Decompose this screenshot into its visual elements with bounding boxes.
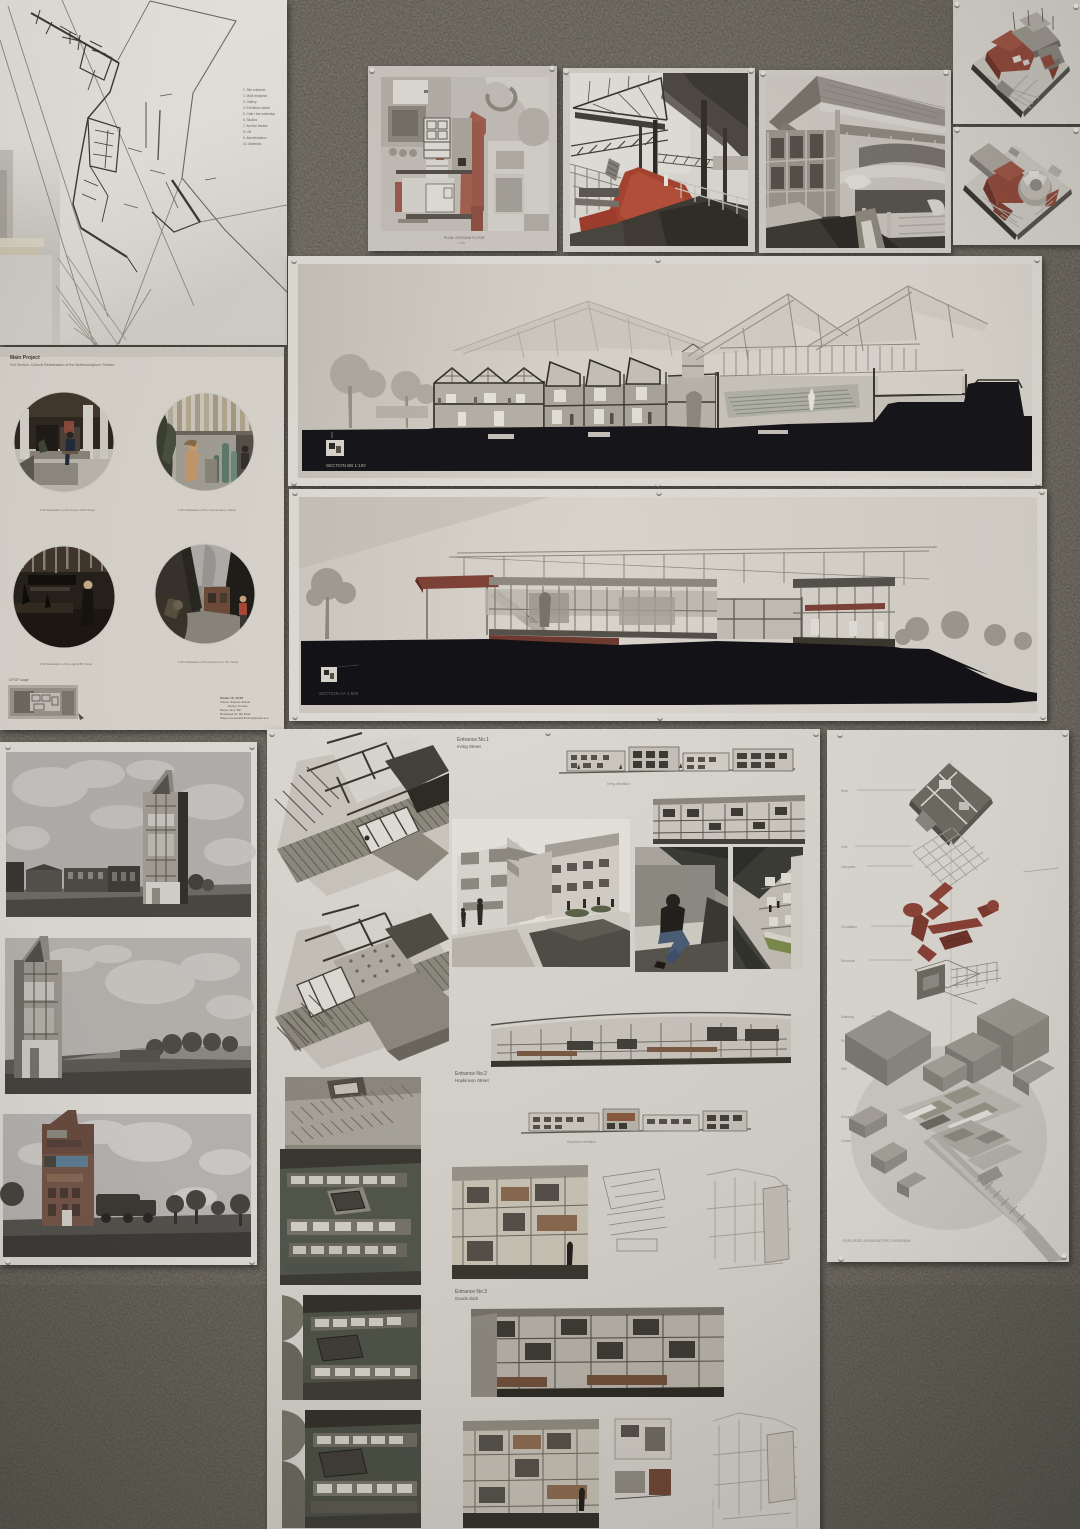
svg-text:Irving Street: Irving Street xyxy=(457,744,481,749)
svg-text:7. Archive theatre: 7. Archive theatre xyxy=(243,124,268,128)
svg-text:SECTION AA 1:500: SECTION AA 1:500 xyxy=(319,691,359,696)
svg-text:2. Multi reception: 2. Multi reception xyxy=(243,94,267,98)
svg-text:1:50 Realisation of the Entran: 1:50 Realisation of the Entrance to the … xyxy=(178,660,238,664)
svg-text:Site: Site xyxy=(841,1067,847,1071)
svg-text:6. Studios: 6. Studios xyxy=(243,118,258,122)
svg-text:Canopies: Canopies xyxy=(841,865,856,869)
svg-text:Massing: Massing xyxy=(841,1015,854,1019)
svg-text:Roof: Roof xyxy=(841,789,848,793)
svg-text:1:50 Realisation of the Conser: 1:50 Realisation of the Conservatory Vis… xyxy=(178,508,236,512)
svg-text:3. Gallery: 3. Gallery xyxy=(243,100,257,104)
svg-text:Grid: Grid xyxy=(841,845,848,849)
svg-text:PLAN: GROUND FLOOR: PLAN: GROUND FLOOR xyxy=(444,236,485,240)
svg-text:EXPLODED AXONOMETRIC OVERVIE: EXPLODED AXONOMETRIC OVERVIEW xyxy=(843,1239,911,1243)
svg-text:Hopkinson Street: Hopkinson Street xyxy=(455,1078,489,1083)
svg-text:9. Administration: 9. Administration xyxy=(243,136,267,140)
svg-text:5. Cafe / bar workshop: 5. Cafe / bar workshop xyxy=(243,112,275,116)
svg-text:Main Project: Main Project xyxy=(10,355,40,361)
svg-text:Hopkinson elevation: Hopkinson elevation xyxy=(567,1140,596,1144)
svg-text:10. Materials: 10. Materials xyxy=(243,142,262,146)
svg-text:Goods dock: Goods dock xyxy=(455,1296,479,1301)
svg-text:Entrance No.1: Entrance No.1 xyxy=(457,737,489,743)
svg-text:Circulation: Circulation xyxy=(841,925,857,929)
svg-text:1:200: 1:200 xyxy=(458,241,465,245)
svg-text:1. Site entrance: 1. Site entrance xyxy=(243,88,266,92)
svg-text:8. Lift: 8. Lift xyxy=(243,130,251,134)
svg-text:SECTION BB 1:100: SECTION BB 1:100 xyxy=(326,463,366,468)
svg-text:GF/GF stage: GF/GF stage xyxy=(9,678,29,682)
svg-text:1:50 Realisation of the Hall 2: 1:50 Realisation of the Hall 2x50 Visual xyxy=(40,662,92,666)
svg-text:Entrance No.2: Entrance No.2 xyxy=(455,1071,487,1077)
svg-text:Sheet: presented 6/10 approved: Sheet: presented 6/10 approved a.m. xyxy=(220,716,270,720)
svg-text:1:50 Realisation of the Foyer: 1:50 Realisation of the Foyer 2x50 Visua… xyxy=(40,508,95,512)
svg-text:4. Exhibition atrium: 4. Exhibition atrium xyxy=(243,106,270,110)
svg-text:Irving elevation: Irving elevation xyxy=(607,782,630,786)
svg-text:Context: Context xyxy=(841,1139,853,1143)
svg-text:Full Section: Cultural Reanima: Full Section: Cultural Reanimation of th… xyxy=(10,363,114,367)
svg-text:Structure: Structure xyxy=(841,959,855,963)
svg-text:Entrance No.3: Entrance No.3 xyxy=(455,1289,487,1295)
